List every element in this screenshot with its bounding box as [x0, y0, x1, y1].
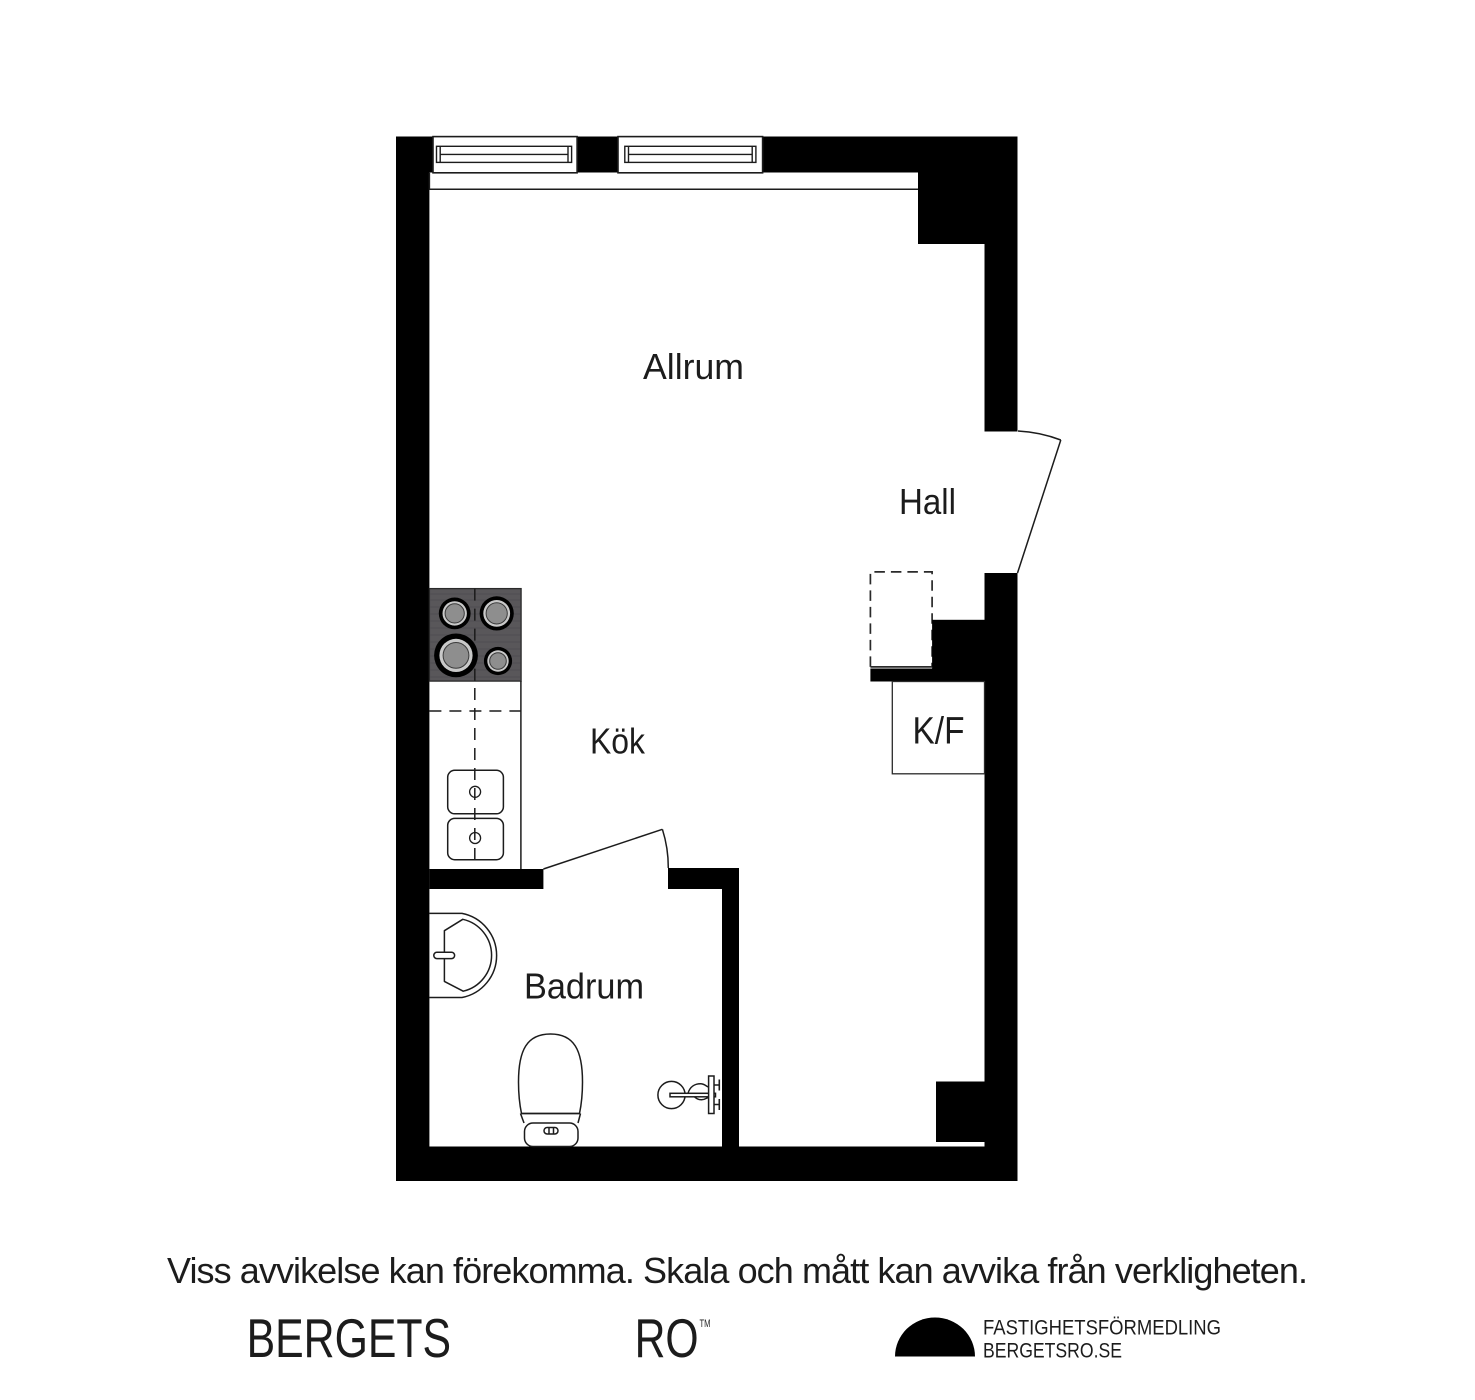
- svg-text:BERGETS: BERGETS: [247, 1307, 452, 1369]
- svg-text:Hall: Hall: [899, 481, 956, 522]
- svg-text:RO: RO: [635, 1307, 699, 1369]
- svg-text:Badrum: Badrum: [524, 966, 644, 1007]
- svg-text:Viss avvikelse kan förekomma.: Viss avvikelse kan förekomma. Skala och …: [167, 1250, 1308, 1291]
- svg-text:BERGETSRO.SE: BERGETSRO.SE: [983, 1340, 1122, 1363]
- svg-text:Allrum: Allrum: [643, 346, 744, 387]
- svg-text:K/F: K/F: [913, 711, 965, 753]
- svg-text:Kök: Kök: [590, 721, 646, 762]
- svg-text:TM: TM: [700, 1318, 711, 1330]
- svg-text:FASTIGHETSFÖRMEDLING: FASTIGHETSFÖRMEDLING: [983, 1317, 1221, 1340]
